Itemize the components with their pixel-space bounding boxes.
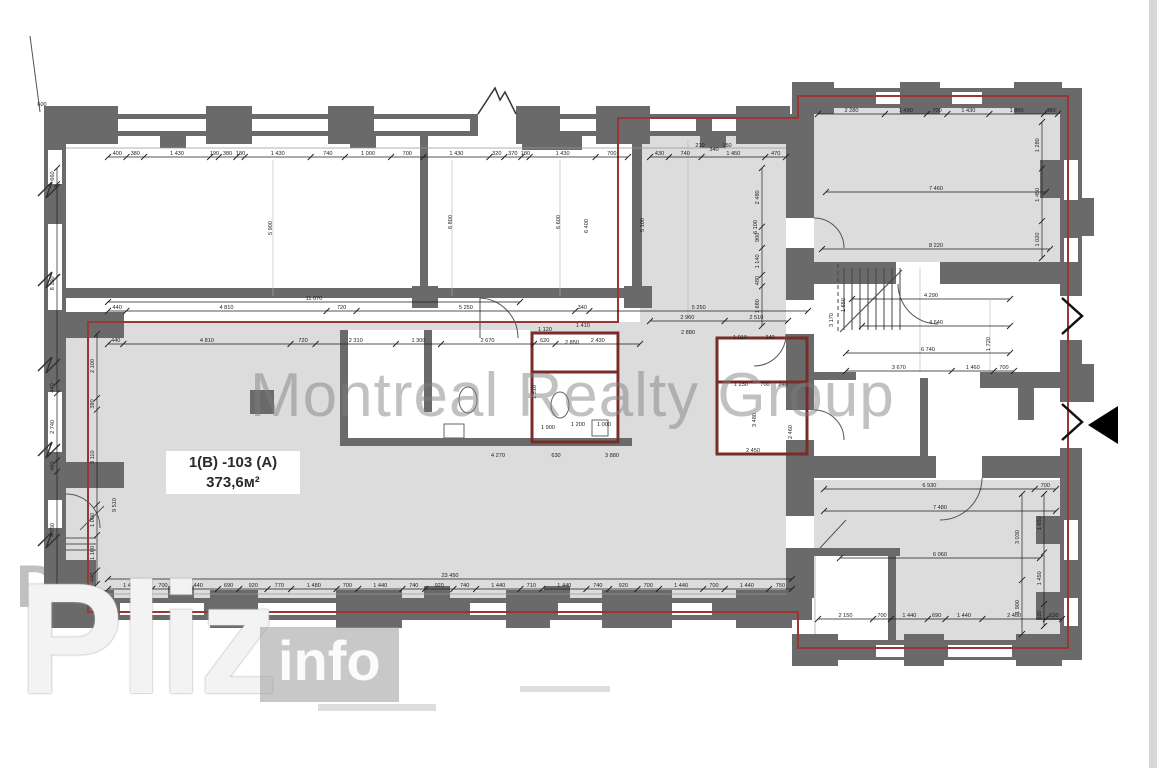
dim-text: 210 xyxy=(695,143,704,149)
dim-text: 440 xyxy=(111,338,120,344)
dim-text: 1 000 xyxy=(361,151,375,157)
dim-text: 1 000 xyxy=(90,513,96,527)
dim-text: 1 440 xyxy=(491,583,505,589)
dim-text: 1 650 xyxy=(841,298,847,312)
dim-text: 7 460 xyxy=(929,186,943,192)
dim-text: 1 440 xyxy=(957,613,971,619)
dim-text: 6 600 xyxy=(556,215,562,229)
floor-plan-page: DOM xyxy=(0,0,1162,768)
dim-text: 920 xyxy=(435,583,444,589)
dim-text: 1 440 xyxy=(740,583,754,589)
dim-text: 180 xyxy=(521,151,530,157)
unit-number: 1(В) -103 (А) xyxy=(166,453,300,473)
dim-text: 700 xyxy=(644,583,653,589)
dim-text: 5 250 xyxy=(692,305,706,311)
dim-text: 720 xyxy=(337,305,346,311)
dim-text: 700 xyxy=(1041,483,1050,489)
dim-text: 1 440 xyxy=(674,583,688,589)
dim-text: 2 740 xyxy=(50,420,56,434)
dim-text: 740 xyxy=(593,583,602,589)
dim-text: 6 060 xyxy=(933,552,947,558)
dim-text: 1 020 xyxy=(1035,233,1041,247)
dim-text: 1 440 xyxy=(902,613,916,619)
dim-text: 740 xyxy=(323,151,332,157)
right-edge-strip xyxy=(1149,0,1157,768)
dim-text: 1 430 xyxy=(899,108,913,114)
dim-text: 6 930 xyxy=(922,483,936,489)
watermark-info: info xyxy=(260,627,399,702)
watermark-tagline-bar xyxy=(318,704,436,711)
dim-text: 2 670 xyxy=(481,338,495,344)
dim-text: 5 250 xyxy=(459,305,473,311)
dim-text: 600 xyxy=(37,102,46,108)
dim-text: 1 430 xyxy=(556,151,570,157)
dim-text: 23 450 xyxy=(441,573,458,579)
dim-text: 700 xyxy=(932,108,941,114)
dim-text: 3 110 xyxy=(90,450,96,464)
dim-text: 4 640 xyxy=(929,320,943,326)
dim-text: 370 xyxy=(508,151,517,157)
dim-text: 6 100 xyxy=(753,220,759,234)
dim-text: 4 290 xyxy=(924,293,938,299)
dim-text: 1 120 xyxy=(538,327,552,333)
dim-text: 2 430 xyxy=(591,338,605,344)
dim-text: 1 720 xyxy=(986,337,992,351)
dim-text: 8 100 xyxy=(50,276,56,290)
dim-text: 5 900 xyxy=(268,221,274,235)
dim-text: 4 810 xyxy=(219,305,233,311)
dim-text: 1 010 xyxy=(733,335,747,341)
dim-text: 2 510 xyxy=(749,315,763,321)
dim-text: 2 150 xyxy=(839,613,853,619)
dim-text: 770 xyxy=(275,583,284,589)
dim-text: 1 450 xyxy=(726,151,740,157)
dim-text: 690 xyxy=(932,613,941,619)
dim-text: 710 xyxy=(527,583,536,589)
dim-text: 9 510 xyxy=(112,498,118,512)
dim-text: 6 800 xyxy=(448,215,454,229)
dim-text: 2 280 xyxy=(844,108,858,114)
dim-text: 3 170 xyxy=(829,313,835,327)
dim-text: 6 740 xyxy=(921,347,935,353)
dim-text: 1 860 xyxy=(1010,108,1024,114)
dim-text: 1 650 xyxy=(1037,516,1043,530)
dim-text: 1 680 xyxy=(755,299,761,313)
dim-text: 4 270 xyxy=(491,453,505,459)
dim-text: 1 460 xyxy=(966,365,980,371)
dim-text: 2 880 xyxy=(681,330,695,336)
dim-text: 2 480 xyxy=(755,190,761,204)
dim-text: 440 xyxy=(50,383,56,392)
dim-text: 8 220 xyxy=(929,243,943,249)
dim-text: 2 100 xyxy=(90,359,96,373)
dim-text: 1 140 xyxy=(755,254,761,268)
watermark-tagline-bar xyxy=(520,686,610,692)
dim-text: 480 xyxy=(755,276,761,285)
dim-text: 11 070 xyxy=(306,296,323,302)
dim-text: 430 xyxy=(655,151,664,157)
dim-text: 2 310 xyxy=(349,338,363,344)
dim-text: 2 450 xyxy=(746,448,760,454)
dim-text: 4 810 xyxy=(200,338,214,344)
dim-text: 2 850 xyxy=(565,340,579,346)
dim-text: 1 440 xyxy=(557,583,571,589)
dim-text: 1 480 xyxy=(307,583,321,589)
dim-text: 700 xyxy=(999,365,1008,371)
watermark-pliz: Pliz xyxy=(18,560,274,718)
dim-text: 1 440 xyxy=(373,583,387,589)
dim-text: 150 xyxy=(722,143,731,149)
dim-text: 340 xyxy=(765,335,774,341)
watermark-center: Montreal Realty Group xyxy=(250,360,895,431)
dim-text: 750 xyxy=(776,583,785,589)
dim-text: 1 450 xyxy=(1035,188,1041,202)
dim-text: 470 xyxy=(771,151,780,157)
dim-text: 2 960 xyxy=(680,315,694,321)
dim-text: 190 xyxy=(210,151,219,157)
dim-text: 700 xyxy=(607,151,616,157)
dim-text: 630 xyxy=(1049,613,1058,619)
dim-text: 440 xyxy=(112,305,121,311)
dim-text: 320 xyxy=(492,151,501,157)
dim-text: 1 900 xyxy=(1015,600,1021,614)
dim-text: 480 xyxy=(1046,108,1055,114)
dim-text: 3 030 xyxy=(1015,530,1021,544)
unit-area-label: 1(В) -103 (А) 373,6м² xyxy=(166,451,300,494)
dim-text: 380 xyxy=(90,399,96,408)
dim-text: 700 xyxy=(709,583,718,589)
dim-text: 1 430 xyxy=(449,151,463,157)
dim-text: 5 100 xyxy=(640,218,646,232)
dim-text: 700 xyxy=(343,583,352,589)
dim-text: 740 xyxy=(409,583,418,589)
dim-text: 6 400 xyxy=(584,219,590,233)
dim-text: 1 430 xyxy=(170,151,184,157)
dim-text: 1 280 xyxy=(1035,138,1041,152)
dim-text: 740 xyxy=(681,151,690,157)
dim-text: 620 xyxy=(1037,610,1043,619)
dim-text: 380 xyxy=(223,151,232,157)
dim-text: 720 xyxy=(298,338,307,344)
dim-text: 700 xyxy=(403,151,412,157)
dim-text: 1 410 xyxy=(576,323,590,329)
dim-text: 180 xyxy=(236,151,245,157)
dim-text: 460 xyxy=(50,461,56,470)
dim-text: 630 xyxy=(551,453,560,459)
dim-text: 340 xyxy=(709,147,718,153)
dim-text: 380 xyxy=(131,151,140,157)
dim-text: 740 xyxy=(460,583,469,589)
dim-text: 4 750 xyxy=(50,523,56,537)
dim-text: 660 xyxy=(50,171,56,180)
dim-text: 1 450 xyxy=(1037,571,1043,585)
unit-area: 373,6м² xyxy=(166,473,300,493)
dim-text: 1 430 xyxy=(271,151,285,157)
dim-text: 3 880 xyxy=(605,453,619,459)
dim-text: 400 xyxy=(113,151,122,157)
dim-text: 340 xyxy=(578,305,587,311)
dim-text: 620 xyxy=(540,338,549,344)
dim-text: 7 480 xyxy=(933,505,947,511)
dim-text: 1 300 xyxy=(412,338,426,344)
entrance-arrow-icon xyxy=(1088,406,1118,444)
dim-text: 920 xyxy=(619,583,628,589)
dim-text: 700 xyxy=(877,613,886,619)
dim-text: 1 430 xyxy=(961,108,975,114)
